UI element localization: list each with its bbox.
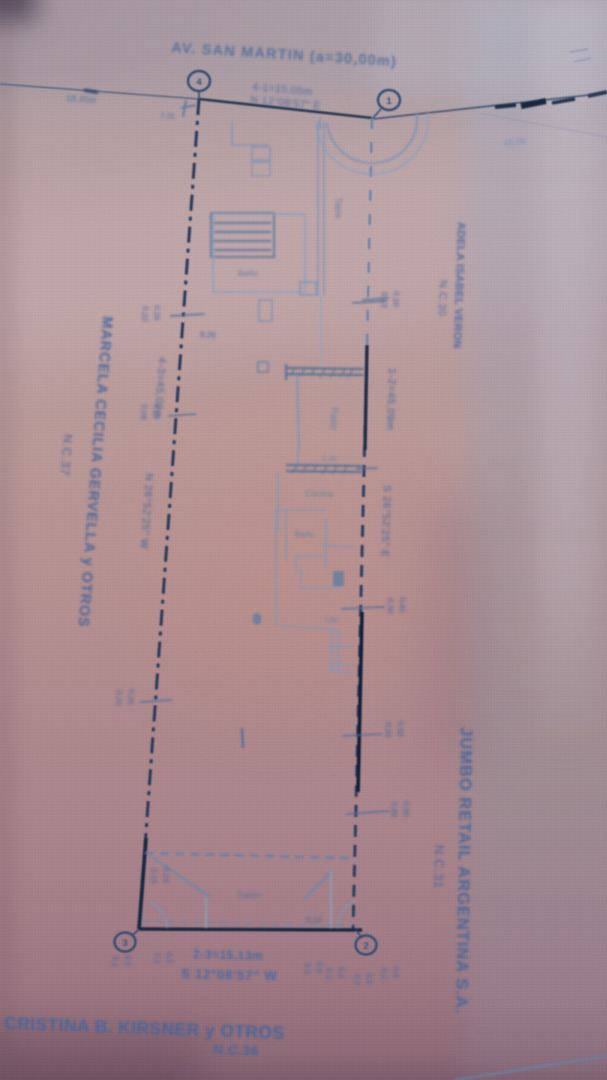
- svg-text:0,1: 0,1: [111, 956, 120, 968]
- svg-text:7,25: 7,25: [160, 111, 175, 121]
- svg-text:JUMBO RETAIL ARGENTINA S.A.: JUMBO RETAIL ARGENTINA S.A.: [452, 727, 475, 1015]
- svg-text:8,26: 8,26: [200, 330, 217, 340]
- svg-text:0,50: 0,50: [395, 721, 405, 737]
- svg-text:45,09: 45,09: [503, 136, 526, 148]
- svg-text:S 26°52'25" E: S 26°52'25" E: [378, 485, 393, 558]
- svg-text:0,26: 0,26: [126, 689, 136, 706]
- svg-text:1: 1: [386, 96, 392, 107]
- svg-text:N.C.30: N.C.30: [436, 280, 449, 317]
- svg-text:0,6: 0,6: [315, 962, 324, 974]
- svg-text:0,28: 0,28: [161, 867, 171, 884]
- svg-text:AV. SAN MARTIN (a=30,00m): AV. SAN MARTIN (a=30,00m): [171, 40, 398, 70]
- svg-text:0,10: 0,10: [391, 291, 401, 307]
- svg-text:0,5: 0,5: [123, 955, 132, 967]
- svg-text:MARCELA CECILIA GERVELLA y OTR: MARCELA CECILIA GERVELLA y OTROS: [75, 316, 115, 628]
- svg-text:N.C.37: N.C.37: [58, 434, 75, 477]
- svg-text:0,08: 0,08: [139, 404, 149, 421]
- svg-text:18,45m: 18,45m: [66, 93, 97, 105]
- svg-text:N 26°52'25" W: N 26°52'25" W: [138, 473, 155, 550]
- svg-text:0,30: 0,30: [385, 598, 395, 614]
- svg-text:0,30: 0,30: [322, 454, 337, 463]
- svg-text:Tapia: Tapia: [334, 197, 344, 219]
- svg-text:S 12°08'57" W: S 12°08'57" W: [181, 966, 278, 984]
- svg-text:0,60: 0,60: [389, 802, 399, 818]
- svg-text:Salón: Salón: [237, 890, 261, 901]
- svg-text:0,5: 0,5: [365, 973, 374, 985]
- svg-text:0,20: 0,20: [114, 690, 124, 707]
- svg-text:ADELA ISABEL VERON: ADELA ISABEL VERON: [451, 222, 467, 349]
- svg-text:1-2=45,09m: 1-2=45,09m: [384, 368, 398, 431]
- svg-text:Patio: Patio: [328, 407, 339, 430]
- svg-text:0,5: 0,5: [165, 952, 174, 964]
- svg-text:0,2: 0,2: [380, 968, 389, 980]
- svg-text:0,90: 0,90: [401, 801, 411, 817]
- svg-text:0,40: 0,40: [397, 597, 407, 613]
- svg-text:3: 3: [122, 938, 127, 949]
- svg-text:Lav.: Lav.: [325, 615, 340, 624]
- svg-text:0,13: 0,13: [379, 292, 389, 308]
- svg-text:0,10: 0,10: [151, 403, 161, 420]
- svg-text:Baño: Baño: [238, 268, 258, 278]
- svg-text:0,4: 0,4: [337, 967, 346, 979]
- svg-text:0,1: 0,1: [153, 953, 162, 965]
- svg-text:0,6: 0,6: [392, 967, 401, 979]
- svg-text:0,2: 0,2: [325, 968, 334, 980]
- svg-text:4: 4: [196, 77, 202, 88]
- svg-text:0,10: 0,10: [306, 915, 322, 925]
- svg-text:Cocina: Cocina: [305, 488, 333, 499]
- svg-text:CRISTINA B. KIRSNER y OTROS: CRISTINA B. KIRSNER y OTROS: [4, 1013, 285, 1043]
- svg-text:0,20: 0,20: [140, 306, 150, 323]
- svg-text:2: 2: [363, 941, 368, 952]
- svg-text:0,26: 0,26: [152, 305, 162, 322]
- svg-text:0,15: 0,15: [149, 868, 159, 885]
- svg-text:2-3=15,13m: 2-3=15,13m: [193, 947, 263, 963]
- svg-text:Baño: Baño: [295, 529, 315, 539]
- svg-text:N.C.36: N.C.36: [213, 1042, 259, 1059]
- svg-text:0,30: 0,30: [383, 722, 393, 738]
- svg-text:N.C.31: N.C.31: [431, 845, 446, 889]
- svg-text:0,3: 0,3: [353, 974, 362, 986]
- svg-text:0,3: 0,3: [303, 963, 312, 975]
